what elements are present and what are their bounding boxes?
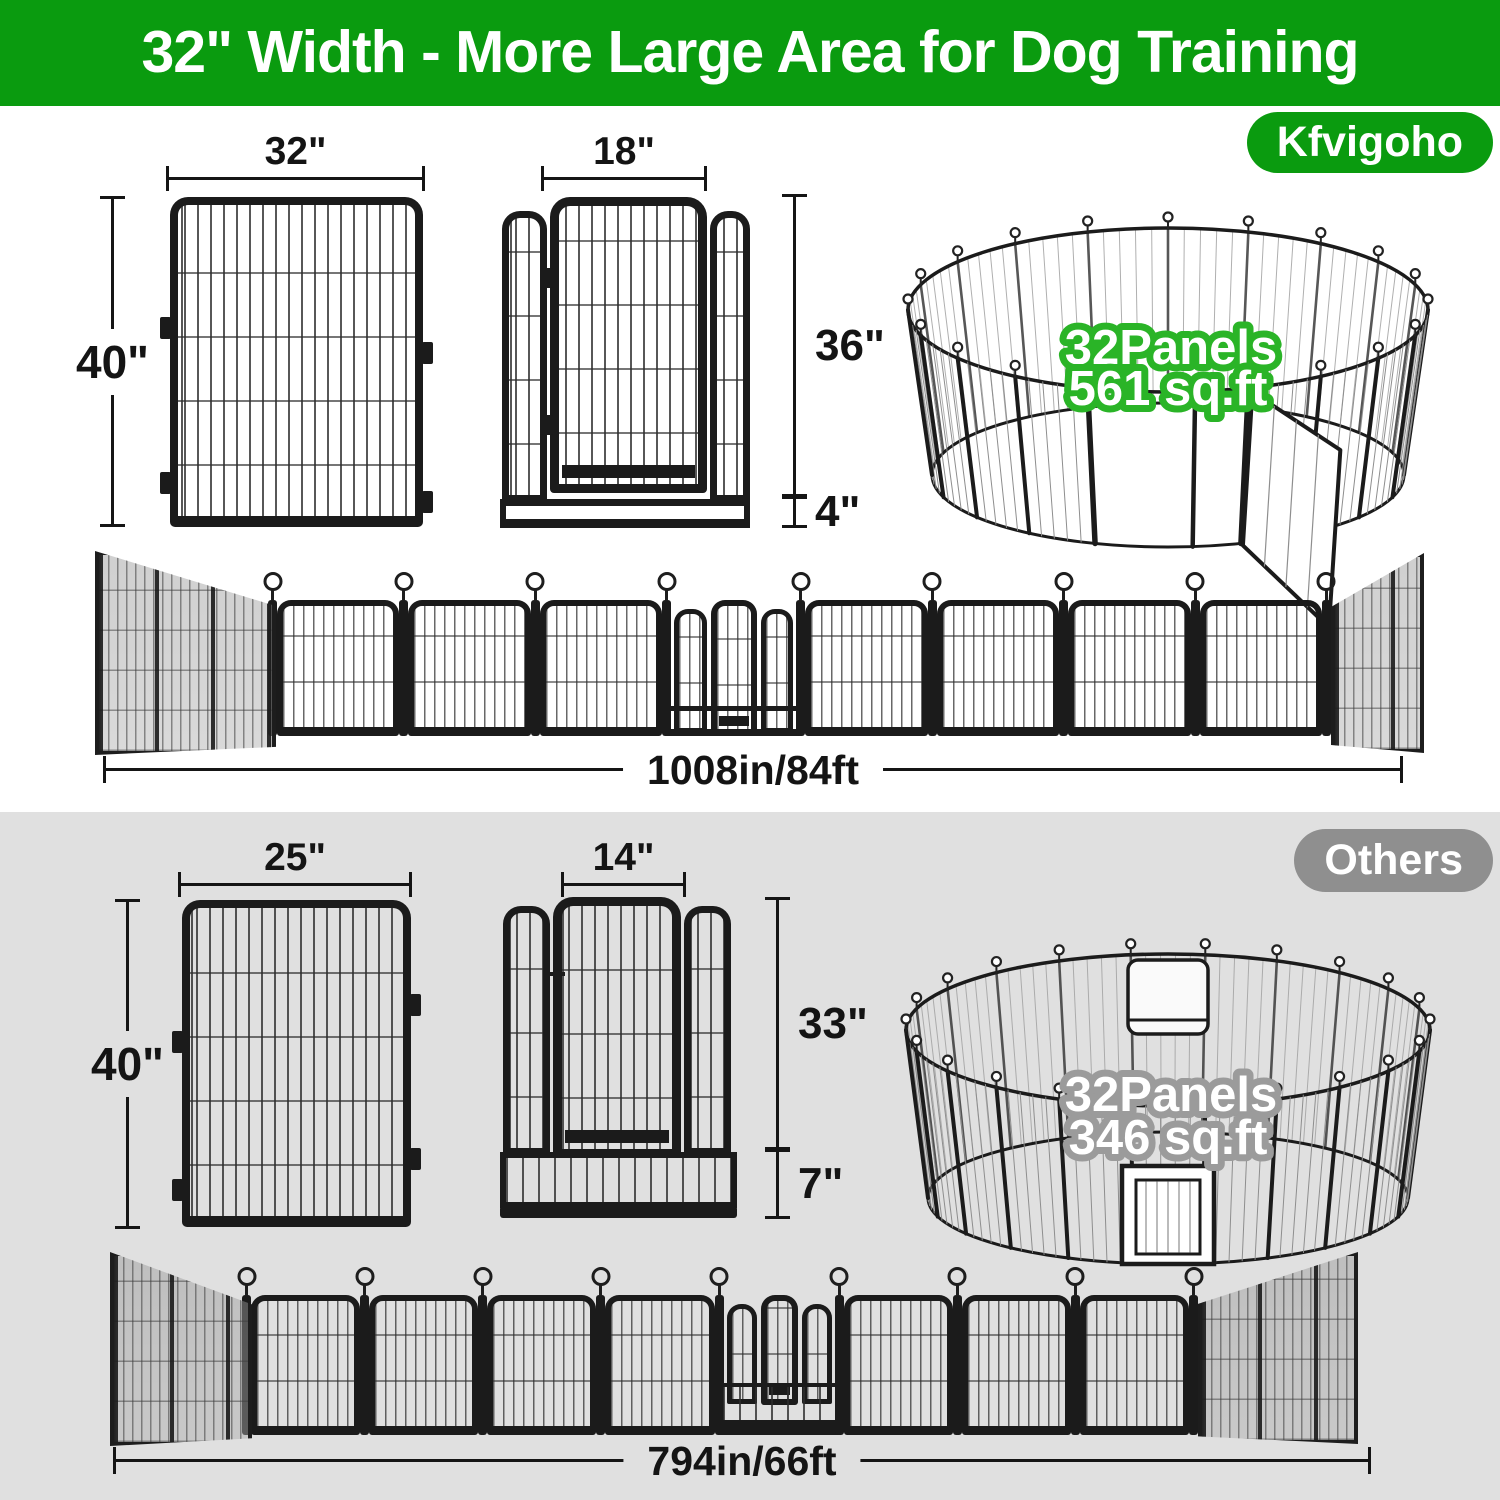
anchor-pin — [355, 1267, 374, 1286]
door-base-frame — [665, 706, 802, 736]
connector-tab — [172, 1031, 183, 1053]
dim-line — [541, 177, 707, 180]
fence-panel — [1080, 1295, 1189, 1435]
fence-post — [478, 1295, 487, 1435]
panel-row-bottom — [110, 1248, 1373, 1448]
dim-label: 40" — [89, 1031, 166, 1097]
anchor-pin — [237, 1267, 256, 1286]
dim-label: 794in/66ft — [623, 1438, 860, 1485]
dim-panel-height-top: 40" — [111, 196, 114, 527]
dim-label: 7" — [798, 1159, 843, 1209]
dim-panel-height-bottom: 40" — [126, 899, 129, 1229]
playpen-comparison-infographic: 32" Width - More Large Area for Dog Trai… — [0, 0, 1500, 1500]
others-badge: Others — [1294, 829, 1493, 892]
anchor-pin — [948, 1267, 967, 1286]
corner-wing-right — [1198, 1252, 1358, 1444]
row-panels — [268, 600, 1331, 736]
panel-row-top — [95, 543, 1415, 748]
dim-line — [793, 496, 796, 528]
dim-label: 33" — [798, 999, 868, 1049]
banner: 32" Width - More Large Area for Dog Trai… — [0, 0, 1500, 106]
fence-panel — [605, 1295, 714, 1435]
fence-panel — [805, 600, 927, 736]
dim-row-length-top: 1008in/84ft — [103, 747, 1403, 794]
connector-tab — [160, 317, 171, 339]
anchor-pin — [1054, 572, 1073, 591]
fence-panel — [1200, 600, 1322, 736]
corner-wing-left — [110, 1252, 252, 1446]
connector-tab — [172, 1179, 183, 1201]
anchor-pin — [830, 1267, 849, 1286]
door-panel-group — [671, 600, 796, 736]
anchor-pin — [1186, 572, 1205, 591]
door-panel-diagram-bottom — [553, 897, 681, 1158]
fence-panel — [540, 600, 662, 736]
door-latch — [545, 972, 565, 976]
door-panel-diagram-top — [550, 197, 707, 493]
panel-diagram-bottom — [182, 900, 411, 1227]
fence-post — [928, 600, 937, 736]
door-base-frame — [500, 499, 750, 528]
door-side-strip — [502, 211, 547, 502]
fence-post — [596, 1295, 605, 1435]
corner-wing-right — [1331, 553, 1424, 753]
dim-panel-width-top: 32" — [166, 130, 425, 180]
ring-playpen-diagram-bottom: 32Panels 346 sq.ft — [890, 940, 1450, 1290]
corner-wing-left — [95, 551, 276, 755]
dim-label: 1008in/84ft — [623, 747, 883, 794]
dim-label: 4" — [815, 487, 860, 537]
dim-panel-width-bottom: 25" — [178, 836, 412, 886]
dim-label: 40" — [74, 329, 151, 395]
door-side-strip — [710, 211, 750, 502]
fence-panel — [277, 600, 399, 736]
dim-door-width-bottom: 14" — [561, 836, 686, 886]
fence-panel — [369, 1295, 478, 1435]
door-bottom-band — [500, 1152, 737, 1208]
fence-post — [360, 1295, 369, 1435]
dim-line — [776, 1149, 779, 1219]
connector-tab — [422, 342, 433, 364]
dim-line — [166, 177, 425, 180]
fence-post — [1071, 1295, 1080, 1435]
anchor-pin — [473, 1267, 492, 1286]
anchor-pin — [591, 1267, 610, 1286]
dim-line — [178, 883, 412, 886]
anchor-pin — [657, 572, 676, 591]
door-hinge — [541, 268, 553, 288]
door-hinge — [541, 415, 553, 435]
dim-label: 36" — [815, 321, 885, 371]
fence-panel — [1068, 600, 1190, 736]
door-bottom-band — [719, 1383, 840, 1424]
brand-badge: Kfvigoho — [1247, 112, 1493, 173]
anchor-pin — [526, 572, 545, 591]
door-panel-group — [724, 1295, 835, 1435]
fence-post — [796, 600, 805, 736]
connector-tab — [410, 1148, 421, 1170]
dim-door-width-top: 18" — [541, 130, 707, 180]
fence-panel — [408, 600, 530, 736]
anchor-pin — [1184, 1267, 1203, 1286]
fence-post — [835, 1295, 844, 1435]
door-side-strip — [684, 906, 731, 1155]
dim-line — [793, 194, 796, 497]
fence-panel — [844, 1295, 953, 1435]
dim-label: 14" — [561, 836, 686, 882]
fence-post — [1322, 600, 1331, 736]
banner-title: 32" Width - More Large Area for Dog Trai… — [0, 0, 1500, 104]
anchor-pin — [1066, 1267, 1085, 1286]
anchor-pin — [263, 572, 282, 591]
anchor-pin — [791, 572, 810, 591]
fence-panel — [487, 1295, 596, 1435]
connector-tab — [160, 472, 171, 494]
fence-panel — [937, 600, 1059, 736]
dim-door-base-bottom: 7" — [776, 1149, 779, 1219]
dim-label: 18" — [541, 130, 707, 176]
dim-row-length-bottom: 794in/66ft — [113, 1438, 1371, 1485]
anchor-pin — [1317, 572, 1336, 591]
dim-label: 32" — [166, 130, 425, 176]
row-panels — [242, 1295, 1198, 1435]
fence-post — [531, 600, 540, 736]
anchor-pin — [923, 572, 942, 591]
fence-post — [1059, 600, 1068, 736]
fence-post — [1189, 1295, 1198, 1435]
ring-area-label: 346 sq.ft — [1069, 1111, 1268, 1165]
ring-area-label: 561 sq.ft — [1069, 362, 1268, 416]
anchor-pin — [394, 572, 413, 591]
dim-label: 25" — [178, 836, 412, 882]
fence-panel — [962, 1295, 1071, 1435]
door-side-strip — [503, 906, 550, 1155]
dim-line — [776, 897, 779, 1150]
dim-line — [561, 883, 686, 886]
dim-door-height-bottom: 33" — [776, 897, 779, 1150]
fence-post — [399, 600, 408, 736]
connector-tab — [422, 491, 433, 513]
connector-tab — [410, 994, 421, 1016]
door-base-frame — [718, 1424, 841, 1435]
fence-panel — [251, 1295, 360, 1435]
dim-door-base-top: 4" — [793, 496, 796, 528]
door-base-bar — [500, 1206, 737, 1218]
fence-post — [1191, 600, 1200, 736]
dim-door-height-top: 36" — [793, 194, 796, 497]
fence-post — [953, 1295, 962, 1435]
anchor-pin — [710, 1267, 729, 1286]
panel-diagram-top — [170, 197, 423, 527]
